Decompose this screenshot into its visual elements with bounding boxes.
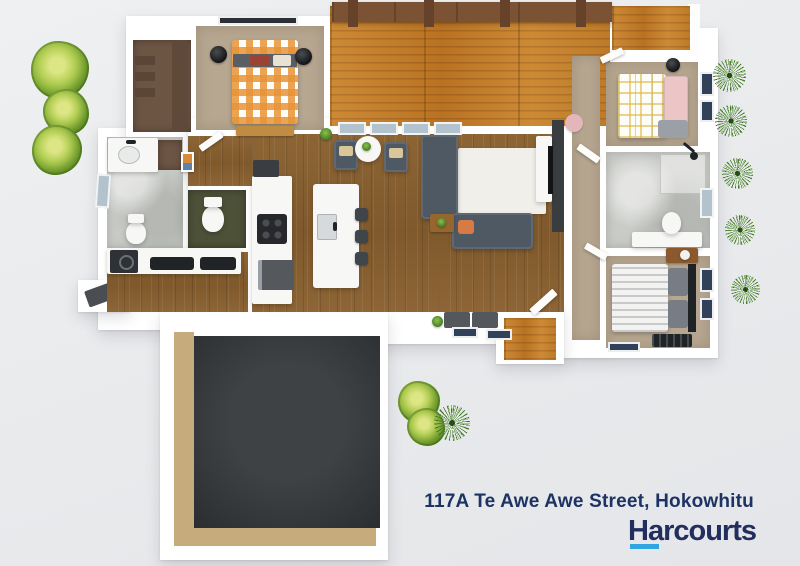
pergola-post [348, 0, 358, 27]
master-window [218, 16, 298, 25]
rug [458, 148, 546, 214]
garage-wall-inner-bottom [174, 528, 376, 546]
living-window [452, 327, 478, 338]
window-bench [444, 312, 470, 328]
brand-lockup: Harcourts [628, 515, 756, 548]
patio-cushion [339, 146, 353, 156]
wardrobe-shelf [135, 88, 155, 97]
laundry-sink [150, 257, 194, 270]
property-address: 117A Te Awe Awe Street, Hokowhitu [424, 491, 754, 513]
table-plant-icon [437, 218, 446, 227]
wardrobe-rail [172, 42, 188, 130]
bar-stool [355, 230, 368, 243]
ensuite-tapware [126, 140, 136, 144]
wardrobe-shelf [135, 56, 155, 65]
flax-plant-icon [731, 275, 760, 304]
pergola-beam [332, 2, 612, 22]
ensuite-toilet [126, 222, 146, 244]
laundry-appliance [200, 257, 236, 270]
bathroom-vanity [632, 232, 702, 247]
shower-head-icon [690, 152, 698, 160]
patio-cushion [389, 148, 403, 158]
garage-wall-inner-left [174, 332, 194, 546]
slider-door-panel [338, 122, 366, 135]
living-window [486, 329, 512, 340]
bedside-lamp-icon [295, 48, 312, 65]
bathroom-toilet [662, 212, 681, 234]
bedroom2-window [700, 72, 714, 96]
master-cushion-cream [273, 55, 291, 66]
bedroom2-throw [658, 120, 688, 138]
bedroom3-window [700, 268, 714, 292]
deck-floor [330, 6, 610, 126]
bar-stool [355, 252, 368, 265]
toilet-room-toilet [202, 206, 224, 232]
slider-door-panel [402, 122, 430, 135]
bedroom3-pillow [668, 300, 688, 328]
ensuite-window [95, 174, 111, 209]
ledge-plant-icon [432, 316, 443, 327]
cooktop [257, 214, 287, 244]
bedside-lamp-icon [210, 46, 227, 63]
wardrobe-shelf [135, 72, 155, 81]
toilet-room-cistern [204, 197, 222, 207]
bathroom-window [700, 188, 714, 218]
washing-machine-door [119, 255, 134, 270]
pergola-post [500, 0, 510, 27]
bedroom2-window [700, 100, 714, 122]
dresser [652, 334, 692, 347]
tv-feature-wall [552, 120, 564, 232]
sectional-sofa [421, 135, 458, 219]
master-bed [232, 40, 298, 124]
pergola-post [576, 0, 586, 27]
hall-left-floor [188, 136, 252, 186]
window-bench [472, 312, 498, 328]
hall-art-frame [181, 152, 194, 172]
bedroom3-window-south [608, 342, 640, 352]
bush-icon [32, 125, 82, 175]
floor-lamp-icon [666, 58, 680, 72]
flax-plant-icon [715, 105, 747, 137]
deck-wing-floor [612, 6, 690, 50]
beanbag [565, 114, 583, 132]
flax-plant-icon [713, 59, 746, 92]
pergola-post [424, 0, 434, 27]
potted-plant-icon [320, 128, 332, 140]
table-greenery [362, 142, 371, 151]
bedroom3-window [700, 298, 714, 320]
sofa-throw [458, 220, 474, 234]
ensuite-toilet-cistern [128, 214, 144, 223]
bar-stool [355, 208, 368, 221]
ensuite-basin [118, 146, 140, 164]
bedroom3-bed [612, 264, 668, 332]
tv-screen [548, 146, 553, 194]
flax-plant-icon [725, 215, 755, 245]
oven [258, 260, 294, 290]
master-cushion-red [250, 55, 270, 66]
garage-floor [194, 336, 380, 528]
slider-door-panel [370, 122, 398, 135]
floor-plan-render: 117A Te Awe Awe Street, Hokowhitu Harcou… [0, 0, 800, 566]
flax-plant-icon [434, 405, 470, 441]
brand-underline-accent [630, 544, 659, 549]
island-tap [333, 222, 337, 231]
fridge [253, 160, 279, 177]
flax-plant-icon [722, 158, 753, 189]
nightstand-lamp-icon [680, 250, 690, 260]
bedroom3-headboard [688, 264, 696, 332]
slider-door-panel [434, 122, 462, 135]
bed-end-bench [236, 126, 294, 136]
bedroom3-pillow [668, 268, 688, 296]
hallway-right-floor [572, 56, 600, 340]
ensuite-cabinet [158, 140, 182, 170]
